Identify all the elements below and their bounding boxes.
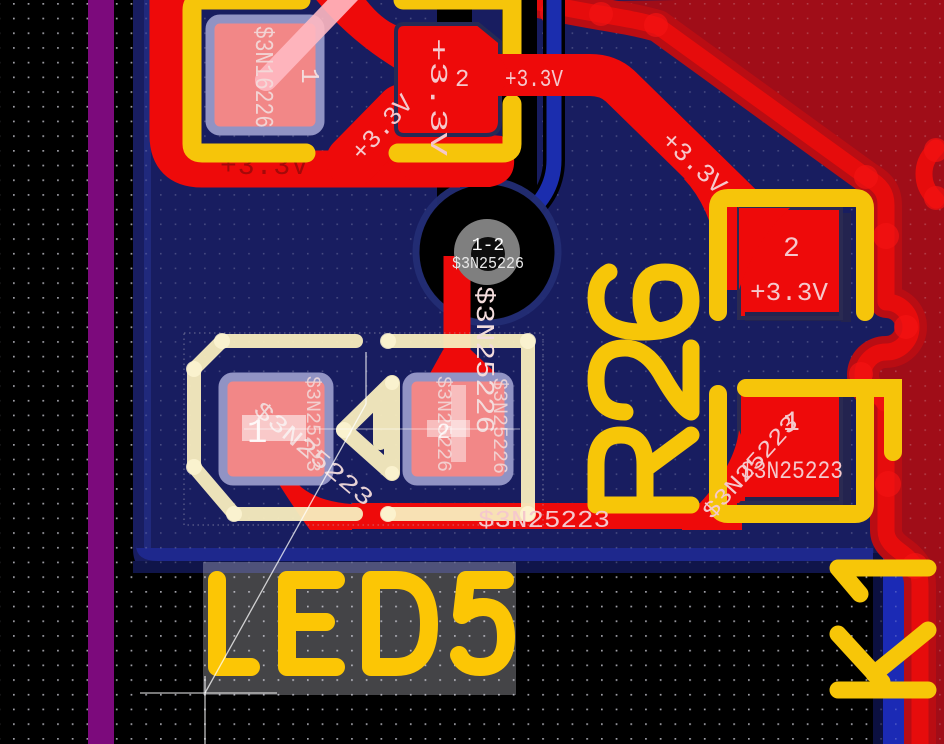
svg-text:$3N16226: $3N16226 <box>248 26 278 128</box>
svg-text:+3.3V: +3.3V <box>750 278 828 308</box>
svg-text:+3.3V: +3.3V <box>423 38 450 157</box>
svg-text:1: 1 <box>294 68 324 84</box>
svg-text:2: 2 <box>437 420 450 445</box>
svg-text:1-2: 1-2 <box>472 236 504 256</box>
svg-text:$3N25226: $3N25226 <box>487 378 510 474</box>
svg-text:2: 2 <box>783 234 800 265</box>
svg-text:+3.3V: +3.3V <box>505 67 563 94</box>
svg-text:2: 2 <box>455 67 469 94</box>
svg-text:1: 1 <box>247 415 267 453</box>
svg-text:$3N25223: $3N25223 <box>478 508 610 535</box>
svg-text:$3N25226: $3N25226 <box>452 255 524 274</box>
